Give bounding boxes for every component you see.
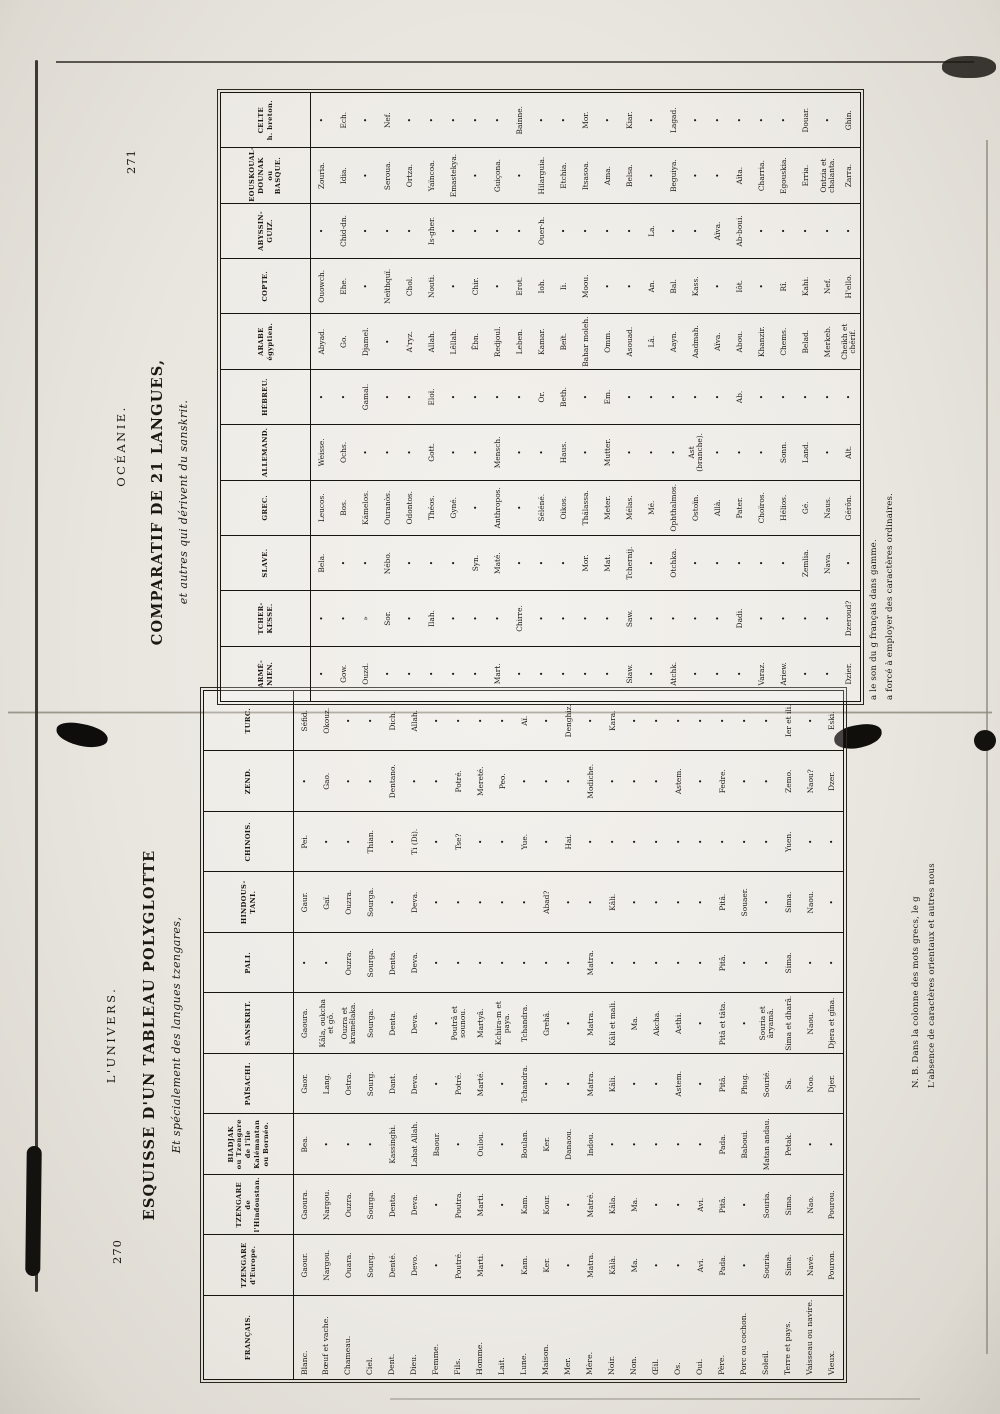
table-cell: Sourga. <box>360 993 382 1054</box>
table-cell: • <box>668 1175 690 1236</box>
table-cell: Kahi. <box>795 259 817 314</box>
table-cell: Avi. <box>690 1235 712 1296</box>
table-cell: Kâla, oukcha et gô. <box>316 993 338 1054</box>
table-cell: • <box>624 933 646 994</box>
table-cell: • <box>690 751 712 812</box>
table-cell: • <box>668 933 690 994</box>
table-cell: Gamal. <box>355 369 377 424</box>
table-cell: • <box>399 369 421 424</box>
table-row: •••Ostoïn.Ast (branche).•Aadmah.Kass.••• <box>685 93 707 702</box>
table-cell: Ouer-h. <box>531 203 553 258</box>
table-cell: Ama. <box>597 148 619 203</box>
table-cell: Marté. <box>470 1054 492 1115</box>
table-cell: Ioh. <box>531 259 553 314</box>
table-cell: Otchka. <box>663 535 685 590</box>
table-cell: Kâla. <box>602 1175 624 1236</box>
table-cell: • <box>690 993 712 1054</box>
table-cell: • <box>800 1114 822 1175</box>
table-cell: Varaz. <box>751 646 773 701</box>
table-row: Ciel.Sourg.Sourga.•Sourg.Sourga.Sourga.S… <box>360 691 382 1380</box>
table-cell: Meter. <box>597 480 619 535</box>
table-cell: Pater. <box>729 480 751 535</box>
table-cell: • <box>602 933 624 994</box>
table-cell: • <box>822 1114 844 1175</box>
table-cell: Oikos. <box>553 480 575 535</box>
table-cell: • <box>575 646 597 701</box>
table-cell: • <box>536 751 558 812</box>
table-cell: Matra. <box>580 1235 602 1296</box>
column-header: ARABE égyptien. <box>221 314 311 369</box>
table-cell: • <box>377 425 399 480</box>
table-cell: • <box>822 933 844 994</box>
running-title-right: OCÉANIE. <box>114 190 128 702</box>
table-cell: Kiar. <box>619 93 641 148</box>
table-cell: Bea. <box>294 1114 316 1175</box>
table-row: Dieu.Devo.Deva.Lahat Allah.Deva.Deva.Dev… <box>404 691 426 1380</box>
table-cell: • <box>333 369 355 424</box>
table-cell: • <box>509 646 531 701</box>
table-cell: • <box>443 369 465 424</box>
table-cell: • <box>839 203 861 258</box>
table-cell: • <box>751 369 773 424</box>
table-cell: Sima. <box>778 1235 800 1296</box>
table-cell: • <box>668 1114 690 1175</box>
table-row: Dent.Denté.Denta.Kassinghi.Dant.Denta.De… <box>382 691 404 1380</box>
table-cell: • <box>470 872 492 933</box>
table-cell: Djera et gîna. <box>822 993 844 1054</box>
table-row: ••Nava.Naus.••Merkeb.Nef.•Ontzia et chal… <box>817 93 839 702</box>
table-cell: Bal. <box>663 259 685 314</box>
table-title-left: ESQUISSE D'UN TABLEAU POLYGLOTTE <box>141 690 158 1380</box>
table-row: Vaisseau ou navire.Navé.Nao.•Noo.Naou.•N… <box>800 691 822 1380</box>
table-cell: • <box>729 646 751 701</box>
table-cell: Abyad. <box>311 314 333 369</box>
table-cell: • <box>624 751 646 812</box>
table-cell: Deva. <box>404 1175 426 1236</box>
table-cell: • <box>377 369 399 424</box>
table-cell: • <box>751 535 773 590</box>
table-cell: Idia. <box>333 148 355 203</box>
table-row: Femme.••Baour.••••••• <box>426 691 448 1380</box>
table-cell: Neïthquï. <box>377 259 399 314</box>
table-cell: • <box>619 369 641 424</box>
page-number-right: 271 <box>124 149 138 174</box>
table-cell: Naus. <box>817 480 839 535</box>
table-cell: • <box>646 1054 668 1115</box>
column-header: SANSKRIT. <box>204 993 294 1054</box>
table-cell: Kam. <box>514 1175 536 1236</box>
table-cell: • <box>360 751 382 812</box>
table-cell: • <box>839 535 861 590</box>
table-cell: Gé. <box>795 480 817 535</box>
table-cell: • <box>311 93 333 148</box>
table-cell: Nao. <box>800 1175 822 1236</box>
table-cell: Siaw. <box>619 646 641 701</box>
table-row: Soleil.Souria.Souria.Matan andau.Sourié.… <box>756 691 778 1380</box>
table-cell: Ouzd. <box>355 646 377 701</box>
table-cell: Chid-dn. <box>333 203 355 258</box>
table-cell: Allah. <box>421 314 443 369</box>
table-cell: • <box>536 933 558 994</box>
table-cell: • <box>619 203 641 258</box>
table-cell: • <box>421 93 443 148</box>
table-cell: • <box>382 872 404 933</box>
table-cell: Gow. <box>333 646 355 701</box>
table-cell: Naou? <box>800 751 822 812</box>
table-cell: • <box>619 425 641 480</box>
table-cell: Hélios. <box>773 480 795 535</box>
table-cell: Cheikh et chérif. <box>839 314 861 369</box>
table-row: •••Mé.••Lâ.An.La.•• <box>641 93 663 702</box>
table-cell: Baboui. <box>734 1114 756 1175</box>
table-cell: • <box>553 535 575 590</box>
table-cell: • <box>553 93 575 148</box>
table-cell: Gaoura. <box>294 1175 316 1236</box>
table-cell: • <box>756 812 778 873</box>
table-cell: Asthi. <box>668 993 690 1054</box>
table-cell: Bos. <box>333 480 355 535</box>
table-cell: • <box>316 933 338 994</box>
table-cell: • <box>734 812 756 873</box>
table-cell: Abad? <box>536 872 558 933</box>
table-cell: • <box>575 369 597 424</box>
row-label: Non. <box>624 1296 646 1380</box>
table-cell: Mé. <box>641 480 663 535</box>
table-cell: • <box>712 812 734 873</box>
row-label: Mère. <box>580 1296 602 1380</box>
table-cell: Chems. <box>773 314 795 369</box>
column-header: TCHER- KESSE. <box>221 591 311 646</box>
table-cell: Pourou. <box>822 1175 844 1236</box>
table-cell: Yuen. <box>778 812 800 873</box>
table-cell: • <box>443 259 465 314</box>
table-row: Bœuf et vache.Nargou.Nargou.•Lang.Kâla, … <box>316 691 338 1380</box>
table-cell: Thian. <box>360 812 382 873</box>
table-row: ••Mat.Meter.Mutter.Em.Omm.••Ama.• <box>597 93 619 702</box>
table-cell: Sima et dharâ. <box>778 993 800 1054</box>
table-cell: Or. <box>531 369 553 424</box>
table-cell: Erot. <box>509 259 531 314</box>
table-cell: • <box>487 369 509 424</box>
table-cell: A'ryz. <box>399 314 421 369</box>
table-cell: • <box>685 203 707 258</box>
table-cell: • <box>641 535 663 590</box>
table-cell: Denté. <box>382 1235 404 1296</box>
table-cell: • <box>426 1175 448 1236</box>
table-subtitle-right: et autres qui dérivent du sanskrit. <box>177 302 190 702</box>
table-cell: Poutré. <box>448 1235 470 1296</box>
table-cell: Nargou. <box>316 1175 338 1236</box>
table-cell: • <box>509 369 531 424</box>
table-cell: • <box>553 203 575 258</box>
table-cell: Denta. <box>382 1175 404 1236</box>
table-cell: Kassinghi. <box>382 1114 404 1175</box>
table-cell: Mélas. <box>619 480 641 535</box>
table-cell: Pada. <box>712 1114 734 1175</box>
table-cell: Dzer. <box>822 751 844 812</box>
table-cell: Navé. <box>800 1235 822 1296</box>
table-cell: • <box>558 993 580 1054</box>
table-cell: La. <box>641 203 663 258</box>
table-cell: Matan andau. <box>756 1114 778 1175</box>
table-cell: Chirre. <box>509 591 531 646</box>
table-cell: Aïta. <box>729 148 751 203</box>
table-cell: Go. <box>333 314 355 369</box>
table-cell: • <box>773 203 795 258</box>
table-cell: • <box>514 933 536 994</box>
table-cell: Ouranòs. <box>377 480 399 535</box>
table-cell: Ilah. <box>421 591 443 646</box>
table-cell: • <box>294 751 316 812</box>
table-cell: • <box>338 751 360 812</box>
table-row: Siaw.Saw.Tchernij.Mélas.••Asouad.••Belsa… <box>619 93 641 702</box>
column-header: PAÏSACHI. <box>204 1054 294 1115</box>
table-cell: • <box>575 203 597 258</box>
table-cell: Ouzra. <box>338 933 360 994</box>
table-cell: • <box>707 646 729 701</box>
table-row: Non.Ma.Ma.••Ma.••••• <box>624 691 646 1380</box>
table-cell: Indou. <box>580 1114 602 1175</box>
table-cell: Denta. <box>382 993 404 1054</box>
table-row: Œil.••••Akcha.••••• <box>646 691 668 1380</box>
table-cell: • <box>355 148 377 203</box>
table-cell: Yue. <box>514 812 536 873</box>
table-cell: • <box>338 1114 360 1175</box>
table-cell: Tchandra. <box>514 993 536 1054</box>
table-cell: • <box>426 1054 448 1115</box>
table-cell: • <box>734 751 756 812</box>
table-cell: Matra. <box>580 993 602 1054</box>
table-cell: • <box>751 259 773 314</box>
table-cell: Sourg. <box>360 1235 382 1296</box>
table-cell: Ti (Di). <box>404 812 426 873</box>
table-cell: • <box>668 812 690 873</box>
polyglot-table-right: ARMÉ- NIEN.TCHER- KESSE.SLAVE.GREC.ALLEM… <box>220 92 861 702</box>
table-cell: • <box>382 812 404 873</box>
table-cell: Ochs. <box>333 425 355 480</box>
table-cell: Ehe. <box>333 259 355 314</box>
table-cell: Noo. <box>800 1054 822 1115</box>
table-cell: Moou. <box>575 259 597 314</box>
table-cell: Eloï. <box>421 369 443 424</box>
table-cell: Charria. <box>751 148 773 203</box>
table-cell: • <box>311 591 333 646</box>
table-cell: Beguiya. <box>663 148 685 203</box>
table-cell: Dadi. <box>729 591 751 646</box>
table-cell: Merkeb. <box>817 314 839 369</box>
table-cell: Marti. <box>470 1175 492 1236</box>
column-header: ABYSSIN- GUIZ. <box>221 203 311 258</box>
row-label: Soleil. <box>756 1296 778 1380</box>
table-cell: Kâli. <box>602 872 624 933</box>
table-cell: • <box>531 535 553 590</box>
table-cell: An. <box>641 259 663 314</box>
table-cell: Dentano. <box>382 751 404 812</box>
table-cell: Danaou. <box>558 1114 580 1175</box>
table-cell: Sourga. <box>360 872 382 933</box>
table-cell: Modiche. <box>580 751 602 812</box>
table-cell: • <box>795 203 817 258</box>
page-270: 270 L'UNIVERS. ESQUISSE D'UN TABLEAU POL… <box>0 690 1000 1380</box>
table-cell: • <box>646 1235 668 1296</box>
table-row: Mart.•Maté.Anthropos.Mensch.•Redjoul.••G… <box>487 93 509 702</box>
table-row: ••Bela.Leucos.Weisse.•Abyad.Ouowch.•Zour… <box>311 93 333 702</box>
table-row: •••Odontos.••A'ryz.Chol.•Ortza.• <box>399 93 421 702</box>
table-cell: • <box>509 425 531 480</box>
table-cell: Kâli. <box>602 1054 624 1115</box>
table-cell: • <box>426 872 448 933</box>
table-cell: Erria. <box>795 148 817 203</box>
table-row: Oui.Avi.Avi.•••••••• <box>690 691 712 1380</box>
table-cell: • <box>399 646 421 701</box>
table-cell: Sourga. <box>360 1175 382 1236</box>
table-cell: Zouria. <box>311 148 333 203</box>
table-cell: • <box>685 646 707 701</box>
table-cell: • <box>465 480 487 535</box>
table-cell: • <box>729 535 751 590</box>
rotated-page-content: 270 L'UNIVERS. ESQUISSE D'UN TABLEAU POL… <box>0 0 1000 1414</box>
table-cell: • <box>580 812 602 873</box>
table-cell: • <box>426 1235 448 1296</box>
table-cell: • <box>448 1114 470 1175</box>
table-cell: • <box>399 425 421 480</box>
table-cell: H'ello. <box>839 259 861 314</box>
table-cell: • <box>575 425 597 480</box>
table-cell: • <box>624 812 646 873</box>
table-cell: • <box>399 93 421 148</box>
table-cell: Souria. <box>756 1175 778 1236</box>
table-row: Père.Pada.Pitâ.Pada.Pitâ.Pitâ et tâta.Pi… <box>712 691 734 1380</box>
table-cell: Boulan. <box>514 1114 536 1175</box>
table-cell: Mereté. <box>470 751 492 812</box>
table-row: Ariew.••Hélios.Sonn.•Chems.Rî.•Egouskia.… <box>773 93 795 702</box>
table-cell: Matra. <box>580 1054 602 1115</box>
table-cell: Marti. <box>470 1235 492 1296</box>
table-cell: • <box>641 148 663 203</box>
table-row: Mer.••Danaou.••••Hai.•Denghiz. <box>558 691 580 1380</box>
table-cell: Gott. <box>421 425 443 480</box>
table-cell: Ouara. <box>338 1235 360 1296</box>
table-cell: • <box>597 203 619 258</box>
table-cell: Pitâ et tâta. <box>712 993 734 1054</box>
table-cell: Belsa. <box>619 148 641 203</box>
table-cell: • <box>558 1175 580 1236</box>
table-cell: Tchernij. <box>619 535 641 590</box>
table-cell: Haus. <box>553 425 575 480</box>
table-cell: • <box>817 203 839 258</box>
table-cell: • <box>817 591 839 646</box>
table-cell: Poutra. <box>448 1175 470 1236</box>
table-cell: • <box>602 751 624 812</box>
table-cell: • <box>443 646 465 701</box>
column-header: PALI. <box>204 933 294 994</box>
row-label: Lune. <box>514 1296 536 1380</box>
table-cell: • <box>355 425 377 480</box>
table-row: Terre et pays.Sima.Sima.Petak.Sa.Sima et… <box>778 691 800 1380</box>
table-cell: Beït. <box>553 314 575 369</box>
table-cell: Ma. <box>624 1235 646 1296</box>
table-cell: Alt. <box>839 425 861 480</box>
table-cell: • <box>773 591 795 646</box>
table-cell: Egouskia. <box>773 148 795 203</box>
table-cell: Itsasoa. <box>575 148 597 203</box>
table-cell: • <box>602 1114 624 1175</box>
table-cell: Bela. <box>311 535 333 590</box>
row-label: Fils. <box>448 1296 470 1380</box>
table-cell: • <box>492 812 514 873</box>
table-cell: • <box>707 148 729 203</box>
table-cell: Sonn. <box>773 425 795 480</box>
table-cell: Ma. <box>624 1175 646 1236</box>
table-row: Porc ou cochon.••Baboui.Phug.••Souaer.••… <box>734 691 756 1380</box>
table-cell: • <box>487 591 509 646</box>
row-label: Os. <box>668 1296 690 1380</box>
table-cell: • <box>426 993 448 1054</box>
table-cell: Leben. <box>509 314 531 369</box>
row-label: Chameau. <box>338 1296 360 1380</box>
table-cell: Etchia. <box>553 148 575 203</box>
table-cell: Ii. <box>553 259 575 314</box>
table-cell: • <box>558 1054 580 1115</box>
table-cell: Ouowch. <box>311 259 333 314</box>
table-cell: • <box>795 591 817 646</box>
table-cell: Astem. <box>668 751 690 812</box>
row-label: Père. <box>712 1296 734 1380</box>
table-row: Os.•••Astem.Asthi.•••Astem.• <box>668 691 690 1380</box>
table-cell: • <box>426 933 448 994</box>
table-cell: • <box>443 591 465 646</box>
table-cell: Ab-boui. <box>729 203 751 258</box>
table-cell: Dant. <box>382 1054 404 1115</box>
table-cell: Souaer. <box>734 872 756 933</box>
table-row: Varaz.••Choïros.••Khanzir.••Charria.• <box>751 93 773 702</box>
table-cell: Fedre. <box>712 751 734 812</box>
table-cell: • <box>509 480 531 535</box>
table-cell: Ech. <box>333 93 355 148</box>
table-cell: • <box>465 203 487 258</box>
footnote-line: a le son du g français dans gamme. <box>866 493 882 700</box>
table-row: Dzier.Dzeroud?•Gérôn.Alt.•Cheikh et chér… <box>839 93 861 702</box>
table-cell: Emastekya. <box>443 148 465 203</box>
table-cell: • <box>492 1054 514 1115</box>
table-cell: Nef. <box>377 93 399 148</box>
table-cell: • <box>426 751 448 812</box>
table-cell: Lagad. <box>663 93 685 148</box>
table-cell: • <box>426 812 448 873</box>
table-cell: Redjoul. <box>487 314 509 369</box>
table-cell: • <box>377 203 399 258</box>
table-cell: • <box>355 259 377 314</box>
table-cell: • <box>756 751 778 812</box>
table-row: ••Zemlia.Gé.Land.•Belad.Kahi.•Erria.Doua… <box>795 93 817 702</box>
table-cell: Sor. <box>377 591 399 646</box>
table-cell: • <box>685 535 707 590</box>
table-cell: Kchira-m et paya. <box>492 993 514 1054</box>
table-cell: Beth. <box>553 369 575 424</box>
table-cell: • <box>685 591 707 646</box>
table-cell: Mutter. <box>597 425 619 480</box>
footnote-line: a forcé à employer des caractères ordina… <box>882 493 898 700</box>
table-cell: Ostra. <box>338 1054 360 1115</box>
table-cell: • <box>734 1175 756 1236</box>
table-cell: • <box>492 872 514 933</box>
table-cell: • <box>470 933 492 994</box>
table-cell: • <box>492 1114 514 1175</box>
column-header: ALLEMAND. <box>221 425 311 480</box>
table-cell: Lang. <box>316 1054 338 1115</box>
table-cell: • <box>619 259 641 314</box>
table-cell: Sima. <box>778 872 800 933</box>
